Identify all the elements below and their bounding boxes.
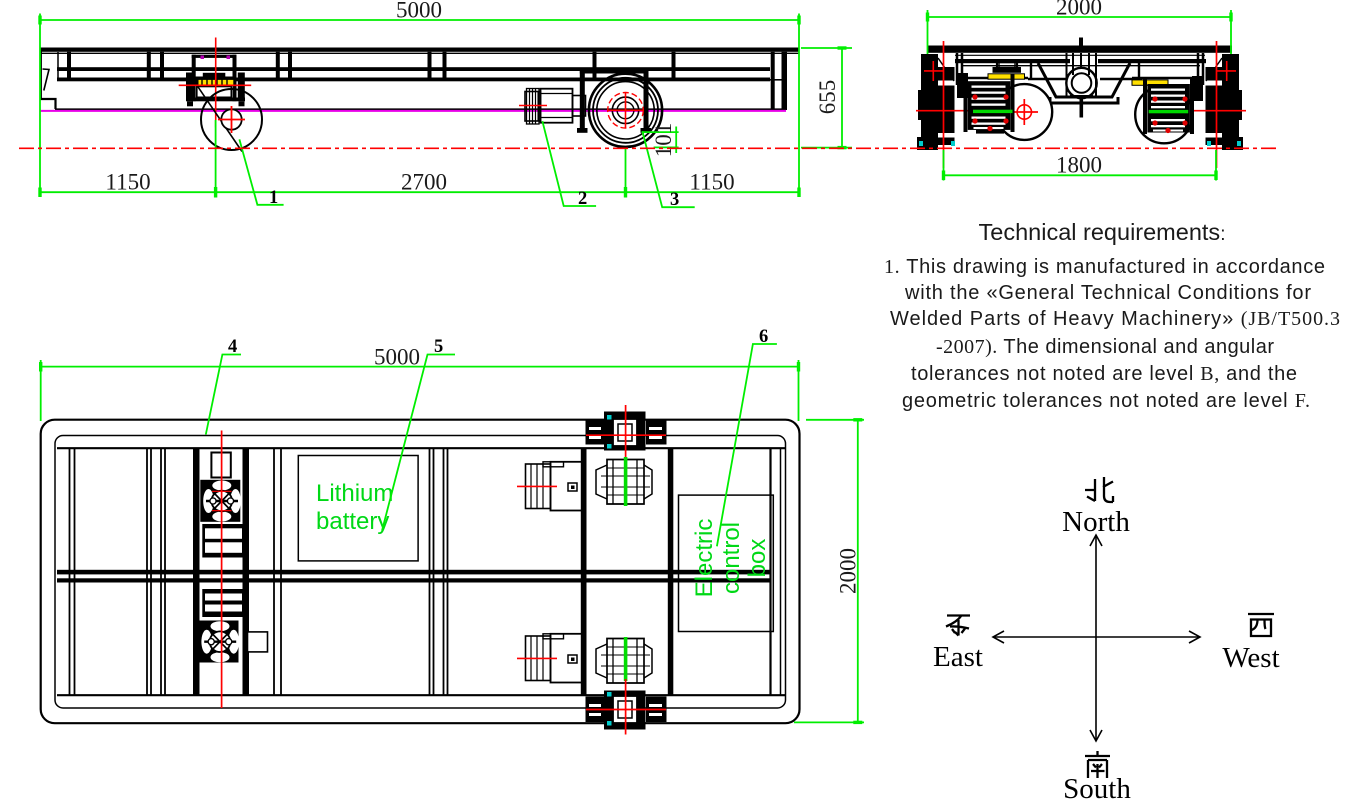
svg-text:-2007). The dimensional and an: -2007). The dimensional and angular	[936, 336, 1274, 358]
svg-text:Lithium: Lithium	[316, 480, 393, 507]
svg-text:1150: 1150	[689, 170, 734, 195]
svg-text:3: 3	[670, 190, 679, 210]
svg-text:4: 4	[228, 337, 237, 357]
svg-text:West: West	[1222, 642, 1279, 674]
svg-text:with the «General Technical Co: with the «General Technical Conditions f…	[904, 282, 1311, 304]
svg-text:5: 5	[434, 337, 443, 357]
svg-text:6: 6	[759, 327, 768, 347]
svg-text:Welded Parts of Heavy Machiner: Welded Parts of Heavy Machinery» (JB/T50…	[890, 308, 1340, 330]
svg-text:1: 1	[269, 188, 278, 208]
svg-text:tolerances not noted are level: tolerances not noted are level B, and th…	[911, 363, 1297, 385]
svg-text:2700: 2700	[401, 170, 447, 195]
svg-text:2000: 2000	[1056, 0, 1102, 20]
svg-text:655: 655	[815, 80, 840, 115]
svg-text:Technical requirements:: Technical requirements:	[979, 219, 1226, 245]
svg-text:1. This drawing is manufacture: 1. This drawing is manufactured in accor…	[884, 256, 1325, 278]
svg-text:1150: 1150	[105, 170, 150, 195]
svg-text:control: control	[718, 522, 745, 594]
svg-text:Electric: Electric	[691, 519, 718, 598]
svg-text:East: East	[933, 641, 983, 673]
svg-text:2: 2	[578, 189, 587, 209]
svg-text:101: 101	[651, 123, 676, 158]
svg-text:1800: 1800	[1056, 153, 1102, 178]
svg-text:box: box	[744, 539, 771, 578]
svg-text:battery: battery	[316, 508, 389, 535]
svg-text:geometric tolerances not noted: geometric tolerances not noted are level…	[902, 390, 1310, 412]
svg-text:North: North	[1062, 506, 1130, 538]
svg-text:5000: 5000	[396, 0, 442, 23]
svg-text:5000: 5000	[374, 345, 420, 370]
svg-text:2000: 2000	[836, 548, 861, 594]
svg-text:South: South	[1063, 773, 1131, 801]
